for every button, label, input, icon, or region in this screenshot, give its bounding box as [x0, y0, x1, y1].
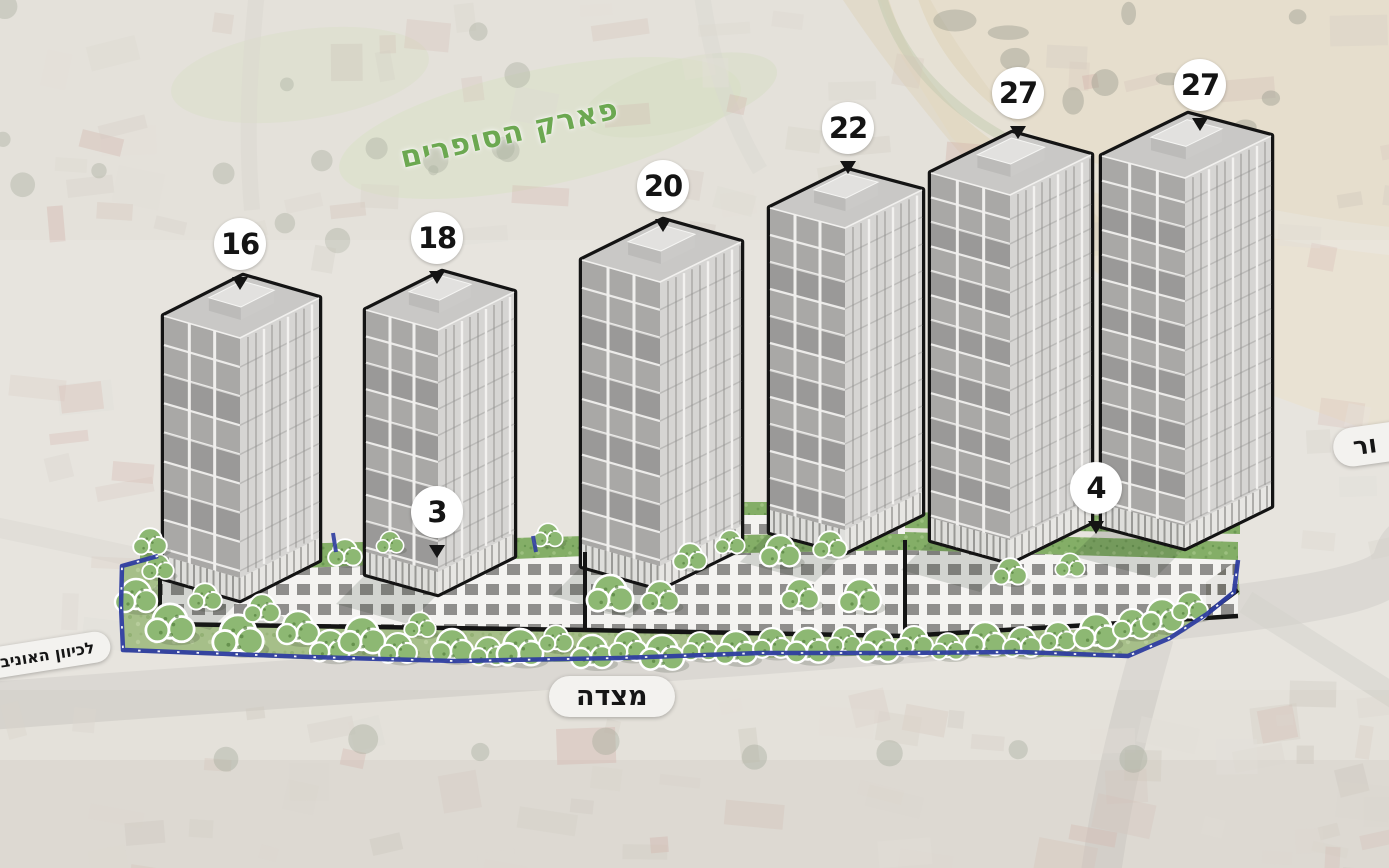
park-name-label: פארק הסופרים: [397, 91, 622, 175]
marker-arrow-icon: [655, 219, 671, 232]
marker-bubble: 22: [822, 102, 874, 154]
street-name-label: מצדה: [549, 676, 675, 717]
marker-bubble: 16: [214, 218, 266, 270]
street-name-label-partial: ור: [1331, 418, 1389, 469]
marker-bubble: 4: [1070, 462, 1122, 514]
floor-count-marker-tower-22: 22: [822, 102, 874, 174]
marker-arrow-icon: [840, 161, 856, 174]
floor-count-marker-tower-16: 16: [214, 218, 266, 290]
marker-bubble: 27: [1174, 59, 1226, 111]
marker-arrow-icon: [232, 277, 248, 290]
marker-bubble: 18: [411, 212, 463, 264]
floor-count-marker-tower-27-east: 27: [1174, 59, 1226, 131]
marker-bubble: 27: [992, 67, 1044, 119]
floor-count-marker-podium-3: 3: [411, 486, 463, 558]
marker-arrow-icon: [1010, 126, 1026, 139]
direction-label: לכיוון האוניבר: [0, 629, 113, 681]
marker-arrow-icon: [429, 545, 445, 558]
floor-count-marker-tower-20: 20: [637, 160, 689, 232]
marker-arrow-icon: [1088, 521, 1104, 534]
floor-count-marker-tower-18: 18: [411, 212, 463, 284]
annotation-overlay: פארק הסופרים מצדה לכיוון האוניבר ור 16 1…: [0, 0, 1389, 868]
marker-bubble: 3: [411, 486, 463, 538]
floor-count-marker-tower-27-west: 27: [992, 67, 1044, 139]
floor-count-marker-podium-4: 4: [1070, 462, 1122, 534]
development-rendering: פארק הסופרים מצדה לכיוון האוניבר ור 16 1…: [0, 0, 1389, 868]
marker-arrow-icon: [429, 271, 445, 284]
marker-bubble: 20: [637, 160, 689, 212]
marker-arrow-icon: [1192, 118, 1208, 131]
